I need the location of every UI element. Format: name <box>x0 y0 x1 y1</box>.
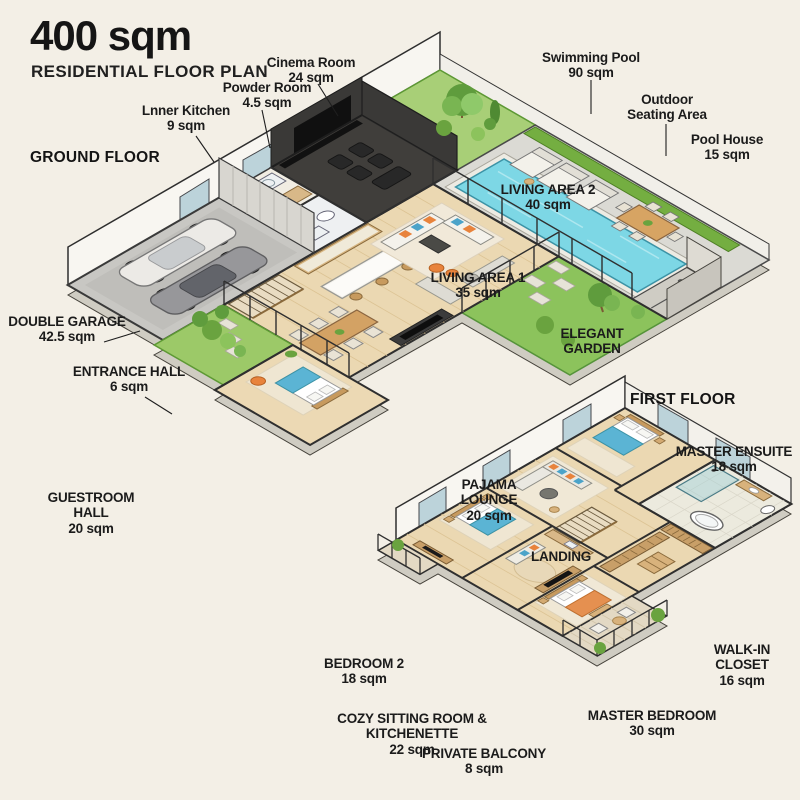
label-double-garage: DOUBLE GARAGE42.5 sqm <box>8 314 125 345</box>
page-title: 400 sqm <box>30 12 191 60</box>
balcony-plant <box>651 608 665 622</box>
label-swimming-pool: Swimming Pool90 sqm <box>542 50 640 81</box>
label-elegant-garden: ELEGANT GARDEN <box>550 326 634 357</box>
label-inner-kitchen: Lnner Kitchen9 sqm <box>142 103 230 134</box>
label-pool-house: Pool House15 sqm <box>691 132 763 163</box>
page-subtitle: RESIDENTIAL FLOOR PLAN <box>31 62 268 82</box>
label-bedroom-2: BEDROOM 218 sqm <box>324 656 404 687</box>
first-floor-plan <box>378 376 800 666</box>
label-outdoor-seating: Outdoor Seating Area <box>619 92 715 123</box>
label-master-bedroom: MASTER BEDROOM30 sqm <box>588 708 716 739</box>
label-landing: LANDING <box>531 549 591 564</box>
label-entrance-hall: ENTRANCE HALL6 sqm <box>73 364 185 395</box>
label-living-area-2: LIVING AREA 240 sqm <box>501 182 596 213</box>
label-master-ensuite: MASTER ENSUITE18 sqm <box>676 444 792 475</box>
ground-floor-label: GROUND FLOOR <box>30 149 160 167</box>
label-pajama-lounge: PAJAMA LOUNGE20 sqm <box>452 477 526 523</box>
balcony-plant <box>392 539 404 551</box>
label-cinema-room: Cinema Room24 sqm <box>267 55 356 86</box>
label-living-area-1: LIVING AREA 135 sqm <box>431 270 526 301</box>
label-private-balcony: PRIVATE BALCONY8 sqm <box>422 746 546 777</box>
label-walk-in-closet: WALK-IN CLOSET16 sqm <box>706 642 778 688</box>
label-guestroom-hall: GUESTROOM HALL20 sqm <box>44 490 138 536</box>
balcony-plant <box>594 642 606 654</box>
floor-plan-poster: 400 sqm RESIDENTIAL FLOOR PLAN GROUND FL… <box>0 0 800 800</box>
first-floor-label: FIRST FLOOR <box>630 391 736 409</box>
